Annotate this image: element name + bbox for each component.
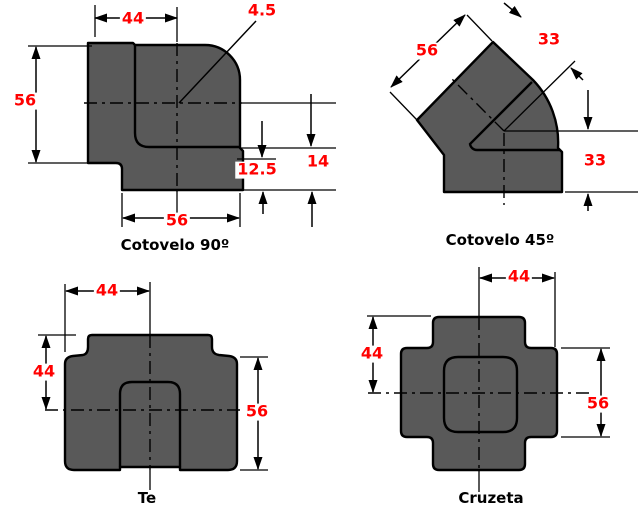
- dim-label-cross-right-height: 56: [585, 396, 611, 413]
- dim-label-cross-top-width: 44: [506, 269, 532, 286]
- cross-drawing: [367, 267, 610, 492]
- dim-label-tee-left-height: 44: [31, 364, 57, 381]
- caption-cross: Cruzeta: [458, 490, 523, 507]
- dim-label-elbow45-top-offset: 33: [536, 32, 562, 49]
- elbow45-dim-56-ext-right: [467, 15, 492, 41]
- caption-elbow45: Cotovelo 45º: [446, 232, 555, 249]
- elbow45-drawing: [390, 3, 638, 211]
- dim-label-elbow90-bottom-width: 56: [164, 213, 190, 230]
- dim-label-tee-right-height: 56: [244, 404, 270, 421]
- dim-label-elbow90-socket-depth: 12.5: [235, 162, 278, 179]
- elbow45-dim-56-ext-left: [390, 92, 417, 120]
- dim-label-tee-top-width: 44: [94, 283, 120, 300]
- dim-label-elbow45-face-width: 56: [414, 43, 440, 60]
- elbow45-dim-top33-arrow-inner: [571, 68, 583, 80]
- dim-label-elbow90-top-width: 44: [120, 11, 146, 28]
- dim-label-cross-left-height: 44: [359, 346, 385, 363]
- caption-elbow90: Cotovelo 90º: [121, 237, 230, 254]
- dim-label-elbow90-radius: 4.5: [246, 3, 278, 20]
- dim-label-elbow90-end-distance: 14: [305, 154, 331, 171]
- elbow45-dim-top33-arrow-outer: [504, 3, 521, 17]
- caption-tee: Te: [138, 490, 156, 507]
- tee-body: [65, 335, 237, 470]
- dim-label-elbow45-right-offset: 33: [582, 153, 608, 170]
- fittings-drawing-canvas: [0, 0, 643, 516]
- tee-drawing: [38, 282, 268, 490]
- dim-label-elbow90-left-height: 56: [12, 93, 38, 110]
- elbow90-drawing: [28, 5, 336, 228]
- pipe-fittings-diagram: 44 4.5 56 12.5 14 56 56 33 33 44 44 56 4…: [0, 0, 643, 516]
- elbow90-body: [88, 43, 243, 190]
